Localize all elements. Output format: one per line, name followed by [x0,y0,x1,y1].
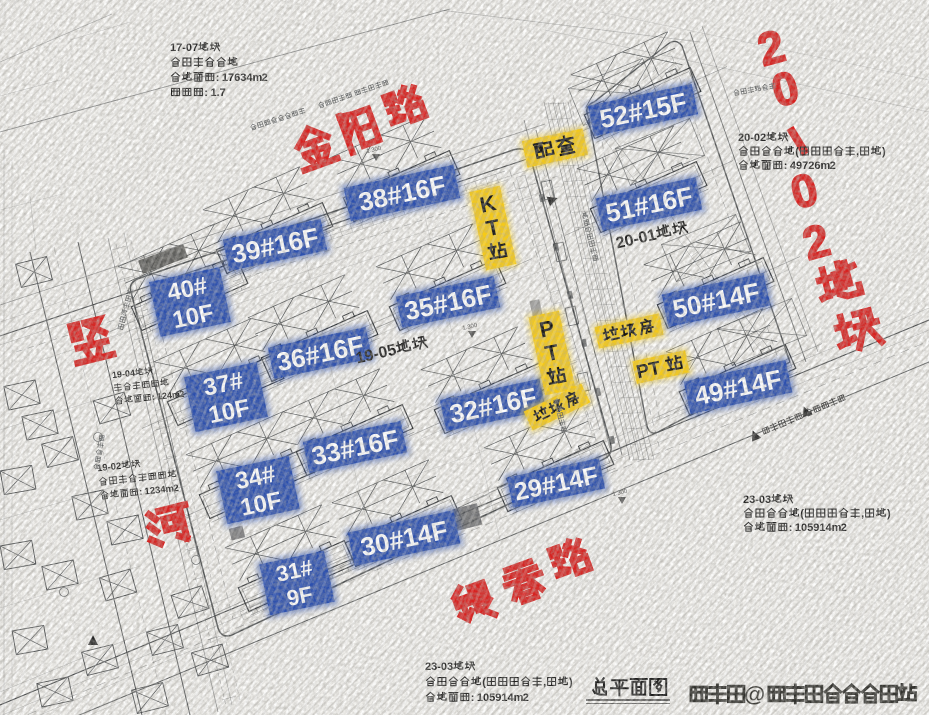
svg-text:,: , [856,146,859,158]
svg-text:(: ( [800,508,804,520]
svg-text:2: 2 [841,522,847,534]
svg-text:): ) [887,508,891,520]
svg-text:3: 3 [765,494,771,506]
svg-text::: : [204,87,208,99]
svg-text:7: 7 [220,87,226,99]
svg-text::: : [784,160,788,172]
svg-text:): ) [882,146,886,158]
svg-text:9F: 9F [285,581,315,611]
svg-text:,: , [861,508,864,520]
svg-text:2: 2 [523,692,529,704]
svg-text:@: @ [744,683,765,707]
svg-text:2: 2 [179,389,185,399]
svg-text:1.300: 1.300 [462,323,479,332]
svg-text:4: 4 [129,368,135,378]
svg-text:2: 2 [760,132,766,144]
svg-text::: : [789,522,793,534]
svg-text:): ) [569,676,573,688]
svg-text:3: 3 [447,661,453,673]
svg-text:1.300: 1.300 [612,489,629,498]
svg-text:(: ( [795,146,799,158]
svg-text:2: 2 [262,72,268,84]
svg-text::: : [471,692,475,704]
svg-text:,: , [543,676,546,688]
svg-text::: : [151,392,155,402]
svg-text:7: 7 [192,42,198,54]
svg-text:2: 2 [173,483,179,494]
svg-text::: : [216,72,220,84]
svg-text:2: 2 [797,213,835,270]
svg-text:2: 2 [115,461,121,472]
svg-text:(: ( [482,676,486,688]
svg-text::: : [139,487,143,498]
svg-text:2: 2 [830,160,836,172]
